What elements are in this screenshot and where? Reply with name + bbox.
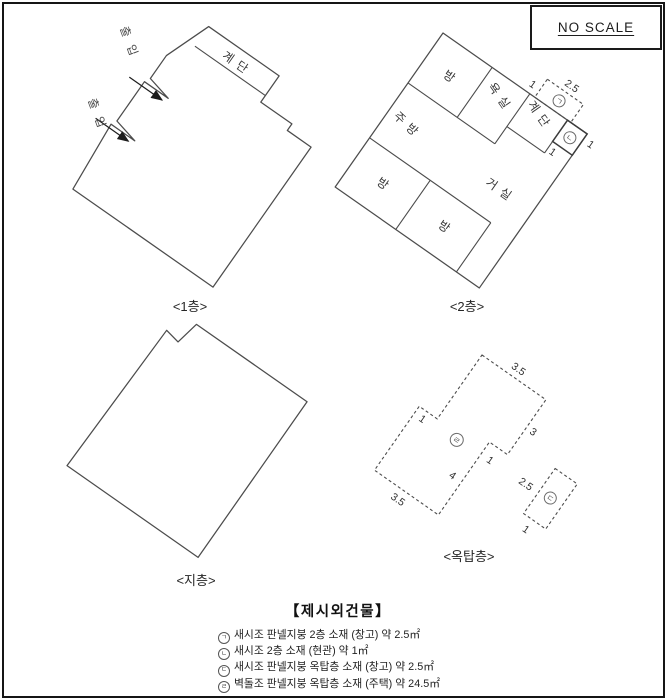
legend-text-d: 벽돌조 판넬지붕 옥탑층 소재 (주택) 약 24.5㎡ bbox=[234, 678, 440, 690]
floor1-entrance-label-1: 출입 bbox=[117, 25, 143, 66]
no-scale-box: NO SCALE bbox=[530, 5, 662, 50]
floor2-dim-width: 2.5 bbox=[562, 77, 581, 95]
floor2-living-label: 거실 bbox=[483, 175, 519, 206]
floor1-outline bbox=[68, 13, 334, 287]
legend-item: ㄴ새시조 2층 소재 (현관) 약 1㎡ bbox=[168, 644, 508, 660]
legend: 【제시외건물】 ㄱ새시조 판넬지붕 2층 소재 (창고) 약 2.5㎡ ㄴ새시조… bbox=[168, 600, 508, 693]
floor1-stairs-label: 계단 bbox=[220, 48, 256, 79]
basement-outline bbox=[67, 310, 307, 557]
legend-marker-d: ㄹ bbox=[218, 681, 230, 693]
floor2-room-bottom-label: 방 bbox=[436, 218, 453, 236]
rooftop-shed-dim-short: 1 bbox=[520, 523, 532, 536]
floor1-entrance-label-2: 출입 bbox=[85, 97, 111, 138]
floor2-bath-label: 욕실 bbox=[485, 80, 516, 116]
rooftop-dim-left-step: 1 bbox=[416, 413, 428, 426]
floor-plan-drawing: 계단 출입 출입 <1층> 방 욕실 계단 주방 방 방 거실 ㄱ ㄴ 1 2.… bbox=[0, 0, 667, 700]
rooftop-plan: ㄹ 3.5 3 1 4 3.5 1 ㄷ 2.5 1 bbox=[365, 330, 615, 584]
floor2-room-left-label: 방 bbox=[374, 175, 391, 193]
no-scale-label: NO SCALE bbox=[558, 20, 634, 35]
floor1-caption: <1층> bbox=[173, 299, 207, 314]
floor2-dim-left: 1 bbox=[527, 78, 539, 91]
floor2-room-top-label: 방 bbox=[441, 68, 458, 86]
rooftop-dim-bottom: 3.5 bbox=[388, 491, 407, 509]
legend-item: ㄷ새시조 판넬지붕 옥탑층 소재 (창고) 약 2.5㎡ bbox=[168, 660, 508, 676]
basement-caption: <지층> bbox=[176, 573, 215, 588]
floor2-dim-right: 1 bbox=[585, 138, 597, 151]
legend-text-a: 새시조 판넬지붕 2층 소재 (창고) 약 2.5㎡ bbox=[234, 629, 420, 641]
floor2-outline bbox=[335, 33, 587, 288]
rooftop-dim-right: 3 bbox=[527, 426, 539, 439]
legend-text-b: 새시조 2층 소재 (현관) 약 1㎡ bbox=[234, 645, 368, 657]
floor1-plan: 계단 bbox=[55, 4, 334, 288]
rooftop-dim-step: 1 bbox=[484, 454, 496, 467]
floor2-stairs-label: 계단 bbox=[525, 98, 556, 134]
basement-plan bbox=[67, 310, 307, 557]
legend-marker-b: ㄴ bbox=[218, 648, 230, 660]
legend-marker-a: ㄱ bbox=[218, 632, 230, 644]
floor2-caption: <2층> bbox=[450, 299, 484, 314]
floor2-kitchen-label: 주방 bbox=[391, 109, 425, 142]
legend-item: ㄱ새시조 판넬지붕 2층 소재 (창고) 약 2.5㎡ bbox=[168, 628, 508, 644]
rooftop-shed-dim-long: 2.5 bbox=[516, 475, 535, 493]
legend-item: ㄹ벽돌조 판넬지붕 옥탑층 소재 (주택) 약 24.5㎡ bbox=[168, 677, 508, 693]
legend-text-c: 새시조 판넬지붕 옥탑층 소재 (창고) 약 2.5㎡ bbox=[234, 661, 434, 673]
legend-title: 【제시외건물】 bbox=[168, 600, 508, 621]
rooftop-caption: <옥탑층> bbox=[443, 549, 494, 564]
legend-marker-c: ㄷ bbox=[218, 665, 230, 677]
rooftop-dim-lower-right: 4 bbox=[446, 469, 458, 482]
